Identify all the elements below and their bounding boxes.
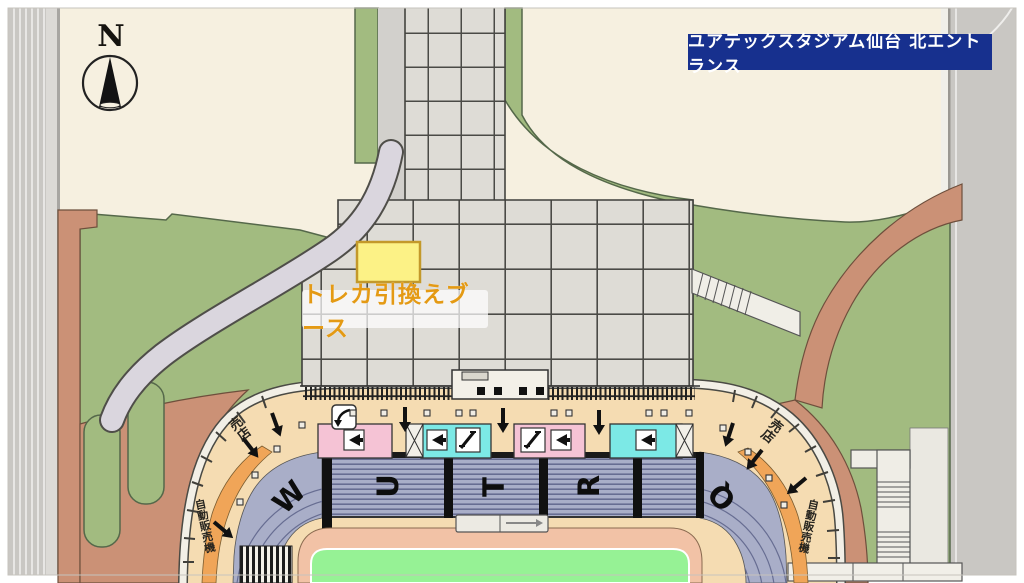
compass-north-label: N bbox=[94, 20, 128, 54]
section-letter-t: T bbox=[476, 469, 512, 505]
right-road bbox=[941, 8, 1016, 575]
title-banner-text: ユアテックスタジアム仙台 北エントランス bbox=[688, 27, 992, 77]
booth-label: トレカ引換えブース bbox=[302, 290, 488, 328]
return-arrow-icon bbox=[332, 405, 356, 429]
bench-box bbox=[456, 515, 548, 532]
section-letter-u: U bbox=[370, 468, 406, 504]
section-letter-r: R bbox=[571, 468, 607, 504]
pitch-field bbox=[311, 549, 689, 583]
left-road bbox=[8, 8, 60, 575]
title-banner: ユアテックスタジアム仙台 北エントランス bbox=[688, 34, 992, 70]
map-graphic bbox=[0, 0, 1024, 583]
stadium-map: ユアテックスタジアム仙台 北エントランス N トレカ引換えブース W U T R… bbox=[0, 0, 1024, 583]
